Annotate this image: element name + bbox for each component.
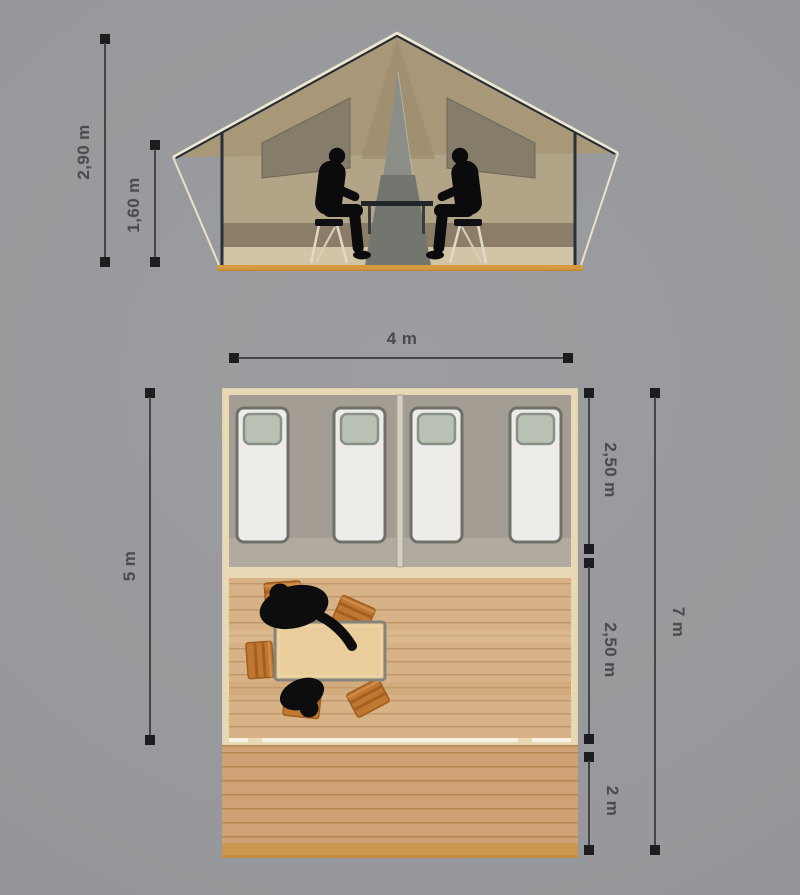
bed-3: [411, 408, 462, 542]
dim-total-depth: [650, 388, 660, 855]
terrace-deck: [222, 745, 578, 843]
left-guy-line: [173, 157, 219, 265]
dim-wall-height-label: 1,60 m: [124, 177, 144, 232]
dim-plan-width: [229, 353, 573, 363]
bed-4: [510, 408, 561, 542]
dim-plan-width-label: 4 m: [387, 329, 418, 349]
tent-plan-diagram: 2,90 m 1,60 m 4 m 5 m 2,50 m 2,50 m 2 m …: [0, 0, 800, 895]
chair-3: [246, 641, 274, 679]
dim-tent-depth: [145, 388, 155, 745]
dim-tent-depth-label: 5 m: [120, 551, 140, 582]
dim-terrace-depth-label: 2 m: [602, 786, 622, 817]
dining-table: [275, 622, 385, 680]
dim-ridge-height-label: 2,90 m: [74, 124, 94, 179]
dim-living-depth: [584, 558, 594, 744]
dim-sleeping-depth: [584, 388, 594, 554]
floor-plan-view: [222, 388, 578, 858]
dim-total-depth-label: 7 m: [668, 607, 688, 638]
dim-living-depth-label: 2,50 m: [600, 622, 620, 677]
terrace-deck-edge: [222, 843, 578, 855]
dim-terrace-depth: [584, 752, 594, 855]
bedroom-divider-wall: [397, 395, 403, 567]
dim-ridge-height: [100, 34, 110, 267]
dim-sleeping-depth-label: 2,50 m: [600, 442, 620, 497]
right-guy-line: [581, 153, 618, 265]
left-pole: [221, 133, 224, 265]
right-pole: [574, 133, 577, 265]
elevation-view: [165, 25, 635, 275]
bed-1: [237, 408, 288, 542]
bed-2: [334, 408, 385, 542]
dim-wall-height: [150, 140, 160, 267]
